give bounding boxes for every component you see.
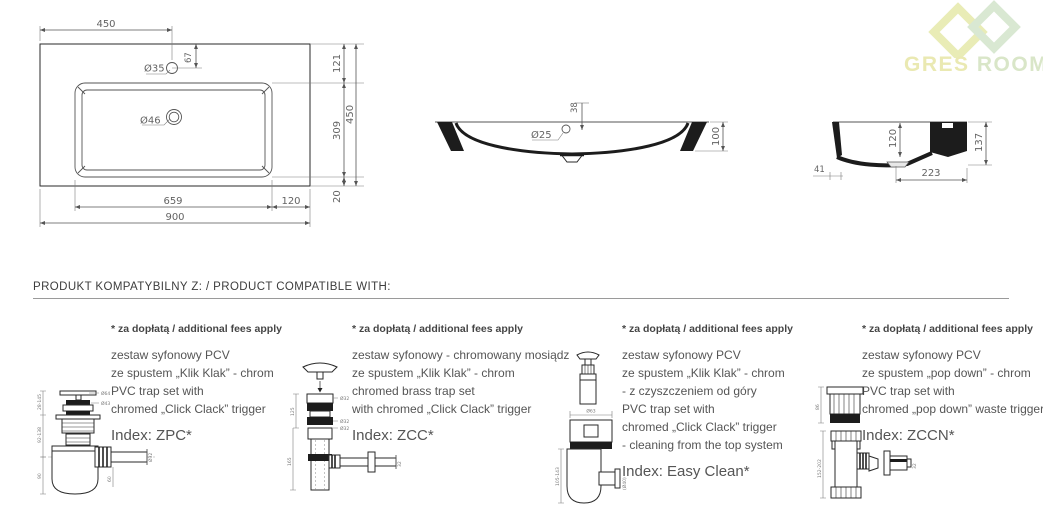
logo-text: GRES ROOM	[904, 53, 1043, 77]
svg-text:Ø43: Ø43	[101, 400, 110, 407]
svg-text:Ø32: Ø32	[340, 425, 349, 432]
trap-zpc-drawing: 28-145 92-138 90 Ø64 Ø43 60 Ø32	[33, 383, 223, 515]
svg-text:125: 125	[290, 407, 296, 416]
section-divider	[33, 298, 1009, 299]
svg-text:28-145: 28-145	[37, 394, 43, 410]
section-heading: PRODUKT KOMPATYBILNY Z: / PRODUCT COMPAT…	[33, 281, 391, 293]
dim-side-height: 137	[974, 133, 985, 152]
front-view-drawing: Ø25 38 100	[425, 88, 735, 188]
dim-width-total: 900	[165, 212, 184, 223]
dim-depth-top: 121	[332, 54, 343, 73]
svg-text:152-202: 152-202	[817, 459, 823, 478]
product-note: * za dopłatą / additional fees apply	[111, 323, 282, 335]
overflow-hole	[562, 125, 570, 133]
svg-text:105-143: 105-143	[555, 467, 561, 486]
svg-text:Ø63: Ø63	[586, 408, 595, 415]
dim-bottom-width: 223	[921, 168, 940, 179]
side-view-drawing: 120 137 41 223	[810, 95, 1010, 195]
svg-text:Ø64: Ø64	[101, 390, 110, 397]
product-easy-clean: * za dopłatą / additional fees apply zes…	[622, 323, 793, 480]
svg-text:90: 90	[37, 473, 43, 479]
product-note: * za dopłatą / additional fees apply	[862, 323, 1043, 335]
top-view-drawing: Ø35 Ø46 67 450 659 120 900 121	[20, 8, 380, 240]
gres-room-logo: GRES ROOM	[898, 0, 1043, 85]
svg-text:Ø32: Ø32	[147, 453, 154, 462]
svg-text:Ø32: Ø32	[340, 395, 349, 402]
trap-easy-clean-drawing: Ø63 (Ø40) 105-143	[553, 348, 638, 516]
dim-front-height: 100	[711, 127, 722, 146]
svg-text:32: 32	[397, 461, 403, 467]
faucet-hole-label: Ø35	[144, 63, 165, 75]
dim-width-right: 120	[281, 196, 300, 207]
dim-depth-total: 450	[345, 105, 356, 124]
svg-text:92-138: 92-138	[37, 427, 43, 443]
svg-text:Ø32: Ø32	[340, 418, 349, 425]
svg-text:32: 32	[912, 463, 918, 469]
svg-text:(Ø40): (Ø40)	[621, 477, 628, 490]
dim-overflow-depth: 38	[570, 102, 580, 113]
spec-sheet: Ø35 Ø46 67 450 659 120 900 121	[0, 0, 1043, 520]
overflow-hole-label: Ø25	[531, 129, 552, 141]
svg-text:60: 60	[107, 476, 113, 482]
svg-text:86: 86	[815, 404, 821, 410]
trap-zcc-drawing: Ø32 Ø32 Ø32 125 165 32	[283, 358, 428, 503]
product-note: * za dopłatą / additional fees apply	[622, 323, 793, 335]
product-note: * za dopłatą / additional fees apply	[352, 323, 569, 335]
drain-hole-label: Ø46	[140, 115, 161, 127]
product-description: zestaw syfonowy PCV ze spustem „Klik Kla…	[622, 346, 793, 454]
trap-zccn-drawing: 86 32 152-202	[811, 383, 929, 515]
product-index: Index: Easy Clean*	[622, 463, 793, 480]
dim-width-bowl: 659	[163, 196, 182, 207]
dim-front-edge: 41	[814, 165, 825, 175]
dim-depth-bowl: 309	[332, 121, 343, 140]
svg-text:165: 165	[287, 457, 293, 466]
dim-faucet-offset: 67	[184, 52, 194, 63]
logo-diamonds-icon	[898, 0, 1043, 58]
dim-dist-faucet: 450	[96, 19, 115, 30]
dim-depth-bottom: 20	[332, 190, 343, 203]
dim-bowl-depth: 120	[888, 129, 899, 148]
